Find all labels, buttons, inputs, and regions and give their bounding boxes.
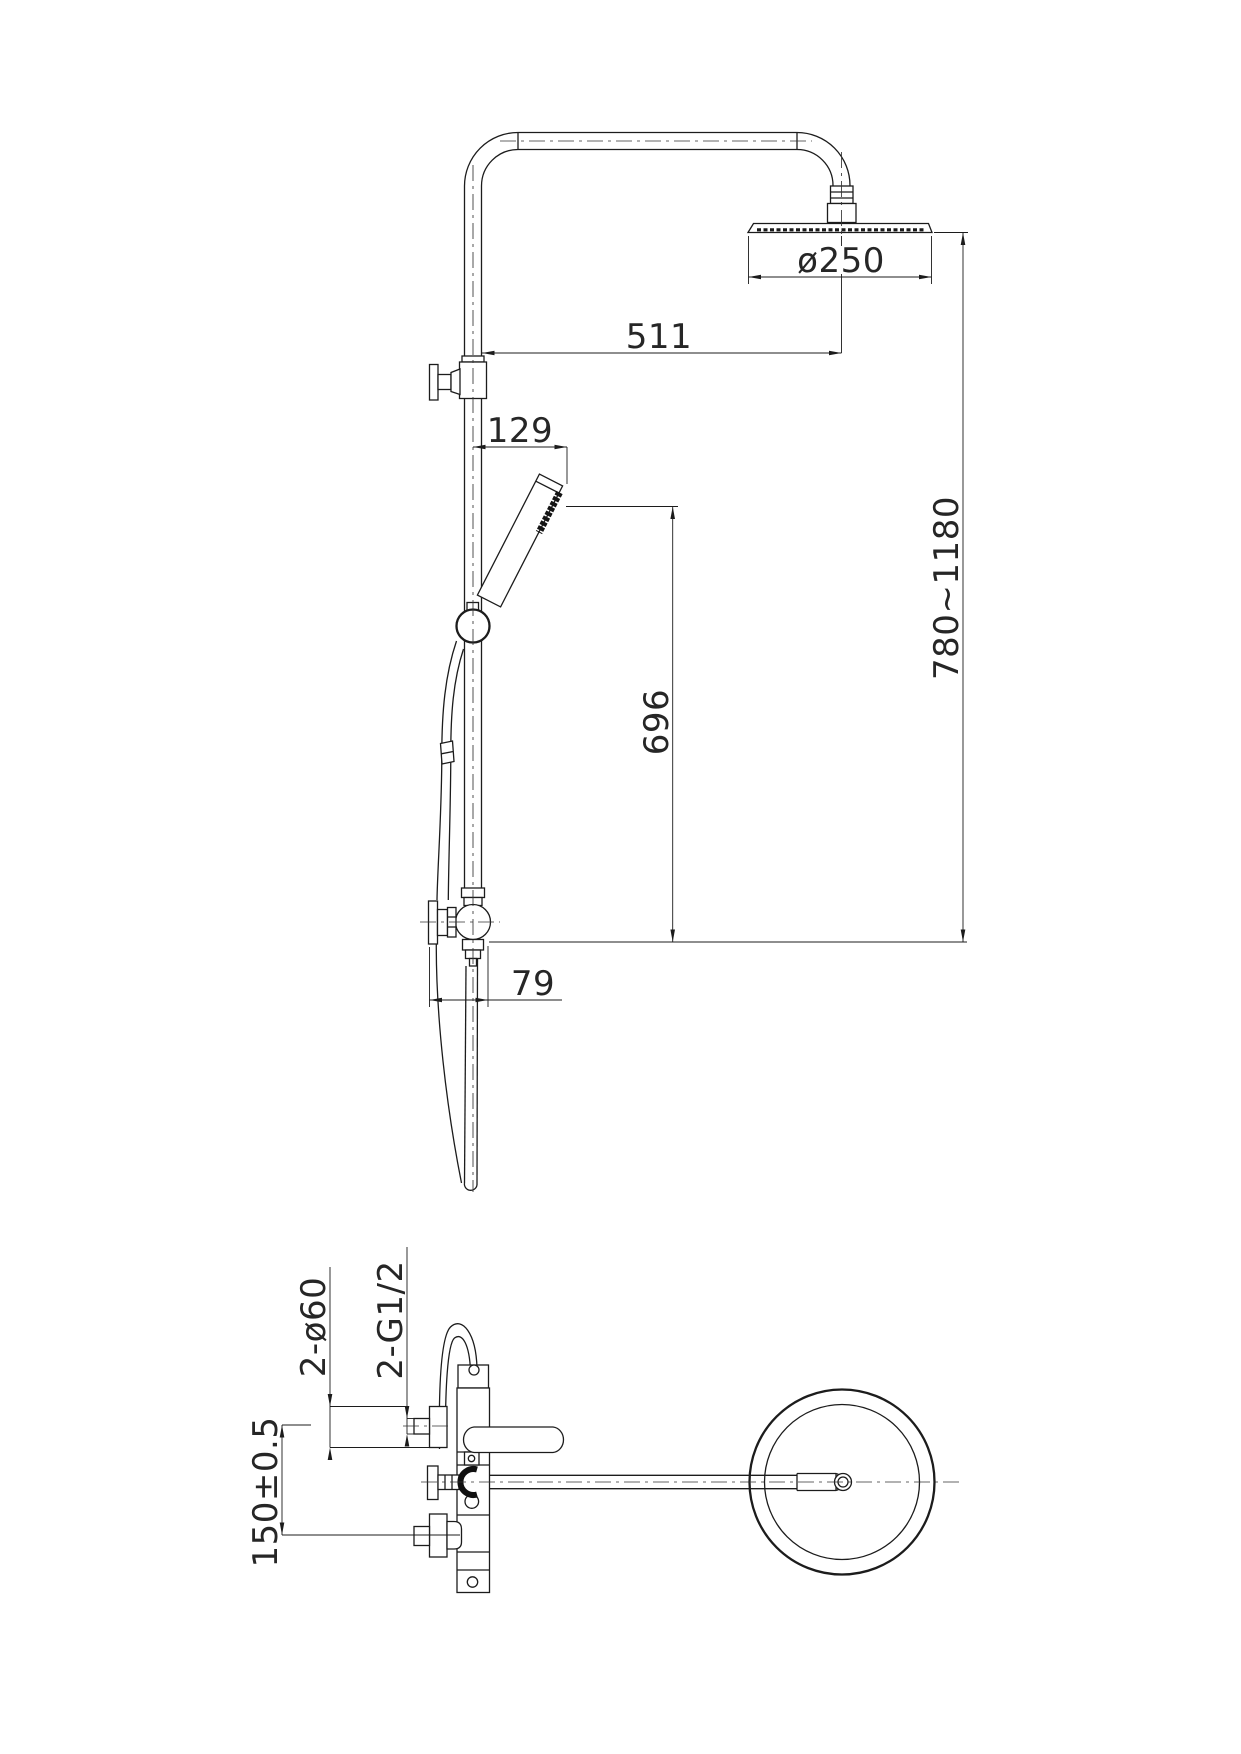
shower-column-technical-drawing: ø250 511 129 696 <box>0 0 1241 1754</box>
dim-label-head-diameter: ø250 <box>797 241 885 281</box>
thread-lower <box>414 1527 430 1546</box>
inlet-port-upper <box>414 1407 447 1448</box>
escutcheon-lower <box>430 1514 448 1557</box>
dim-arm-reach: 511 <box>482 317 842 357</box>
top-view: 150±0.5 2-ø60 2-G1/2 <box>246 1247 963 1593</box>
drawing-sheet: ø250 511 129 696 <box>0 0 1241 1754</box>
diverter-valve <box>430 356 487 400</box>
dim-handshower-offset: 129 <box>473 411 567 484</box>
front-view: ø250 511 129 696 <box>420 133 968 1193</box>
temperature-knob <box>429 901 438 944</box>
dim-label-handshower-offset: 129 <box>487 411 553 451</box>
dim-label-inlet-spacing: 150±0.5 <box>246 1417 286 1568</box>
dim-label-thread: 2-G1/2 <box>371 1260 411 1379</box>
dim-head-diameter: ø250 <box>749 236 932 353</box>
escutcheon-upper <box>430 1407 448 1448</box>
rain-shower-head <box>748 224 932 233</box>
dim-riser-length: 696 <box>566 507 678 943</box>
dim-thread: 2-G1/2 <box>371 1247 418 1447</box>
temperature-handle <box>464 1427 564 1453</box>
shower-arm <box>465 133 857 223</box>
thermostatic-valve <box>429 888 491 966</box>
dim-height-range: 780~1180 <box>489 233 968 943</box>
diverter-handle <box>430 365 439 401</box>
dim-label-valve-offset: 79 <box>511 964 555 1004</box>
dim-valve-offset: 79 <box>430 946 563 1007</box>
hose-end-cap <box>464 1183 477 1190</box>
dim-label-escutcheon: 2-ø60 <box>294 1277 334 1377</box>
inlet-port-lower <box>414 1514 462 1557</box>
dim-label-arm-reach: 511 <box>626 317 692 357</box>
hand-shower <box>477 474 562 607</box>
centerlines-front <box>420 141 842 1192</box>
dim-label-height-range: 780~1180 <box>927 496 967 680</box>
dim-label-riser-length: 696 <box>637 689 677 755</box>
